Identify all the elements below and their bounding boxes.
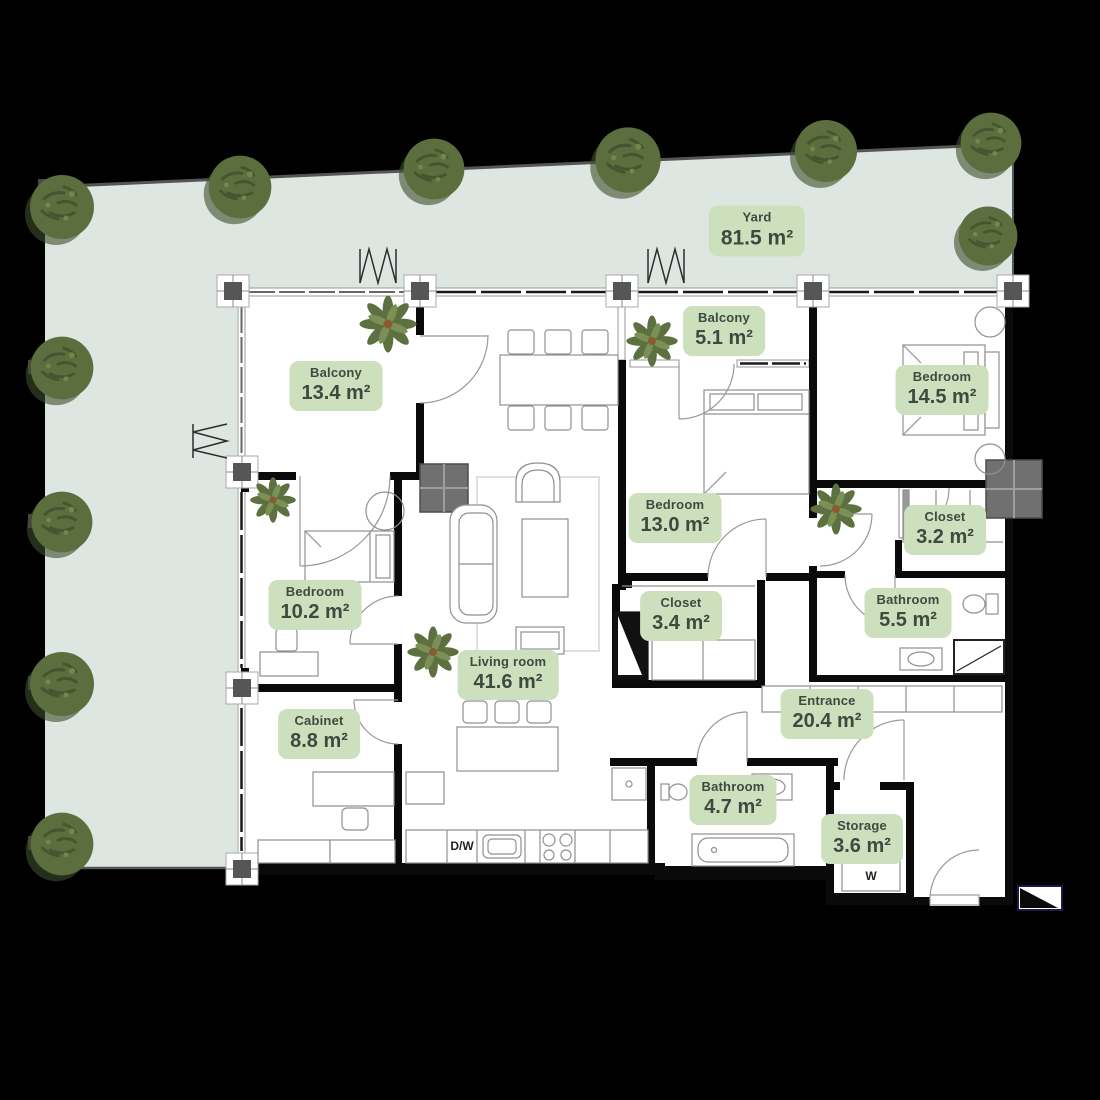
tree-icon (26, 813, 94, 882)
fridge-icon (406, 772, 444, 804)
room-area: 4.7 m² (702, 796, 765, 819)
room-label-balcony-large: Balcony 13.4 m² (290, 361, 383, 411)
room-label-bathroom-large: Bathroom 5.5 m² (865, 588, 952, 638)
dining-set (500, 330, 618, 430)
room-name: Bathroom (877, 593, 940, 608)
column-icon (226, 672, 258, 704)
bed-middle (704, 390, 809, 494)
room-name: Balcony (302, 366, 371, 381)
room-name: Bedroom (641, 498, 710, 513)
room-area: 5.5 m² (877, 609, 940, 632)
room-label-storage: Storage 3.6 m² (821, 814, 903, 864)
room-name: Closet (916, 510, 974, 525)
exterior-stair-marker (1018, 886, 1062, 910)
room-label-closet-small: Closet 3.2 m² (904, 505, 986, 555)
room-area: 81.5 m² (721, 226, 793, 250)
room-label-cabinet: Cabinet 8.8 m² (278, 709, 360, 759)
toilet-icon (661, 784, 669, 800)
plant-icon (810, 483, 861, 534)
room-name: Bedroom (908, 370, 977, 385)
cross-column-icon (420, 464, 468, 512)
room-label-closet-large: Closet 3.4 m² (640, 591, 722, 641)
room-label-entrance: Entrance 20.4 m² (781, 689, 874, 739)
room-label-bedroom-left: Bedroom 10.2 m² (269, 580, 362, 630)
room-label-bedroom-middle: Bedroom 13.0 m² (629, 493, 722, 543)
room-area: 10.2 m² (281, 601, 350, 624)
room-name: Entrance (793, 694, 862, 709)
room-area: 20.4 m² (793, 710, 862, 733)
room-name: Bathroom (702, 780, 765, 795)
cross-column-icon (986, 460, 1042, 518)
column-icon (226, 456, 258, 488)
washer-label: W (865, 869, 876, 883)
room-label-balcony-small: Balcony 5.1 m² (683, 306, 765, 356)
plant-icon (360, 296, 417, 353)
room-label-yard: Yard 81.5 m² (709, 205, 805, 256)
room-name: Living room (470, 655, 547, 670)
room-name: Storage (833, 819, 891, 834)
plant-icon (626, 315, 677, 366)
column-icon (997, 275, 1029, 307)
room-label-living-room: Living room 41.6 m² (458, 650, 559, 700)
dishwasher-label: D/W (450, 839, 473, 853)
room-name: Cabinet (290, 714, 348, 729)
room-name: Bedroom (281, 585, 350, 600)
column-icon (217, 275, 249, 307)
room-area: 8.8 m² (290, 730, 348, 753)
room-area: 14.5 m² (908, 386, 977, 409)
room-label-bedroom-top-right: Bedroom 14.5 m² (896, 365, 989, 415)
room-area: 13.4 m² (302, 382, 371, 405)
room-area: 3.6 m² (833, 835, 891, 858)
room-area: 5.1 m² (695, 327, 753, 350)
bathtub-icon (692, 834, 794, 866)
plant-icon (250, 477, 296, 523)
room-area: 3.2 m² (916, 526, 974, 549)
room-area: 13.0 m² (641, 514, 710, 537)
column-icon (606, 275, 638, 307)
room-name: Closet (652, 596, 710, 611)
plant-icon (407, 626, 458, 677)
room-label-bathroom-small: Bathroom 4.7 m² (690, 775, 777, 825)
column-icon (404, 275, 436, 307)
floor-plan-canvas: Yard 81.5 m² Balcony 13.4 m² Balcony 5.1… (0, 0, 1100, 1100)
column-icon (797, 275, 829, 307)
room-name: Yard (721, 210, 793, 225)
room-area: 3.4 m² (652, 612, 710, 635)
room-name: Balcony (695, 311, 753, 326)
column-icon (226, 853, 258, 885)
kitchen-unit (612, 768, 646, 800)
room-area: 41.6 m² (470, 671, 547, 694)
kitchen-island (457, 701, 558, 771)
sink-icon (900, 648, 942, 670)
toilet-icon (986, 594, 998, 614)
